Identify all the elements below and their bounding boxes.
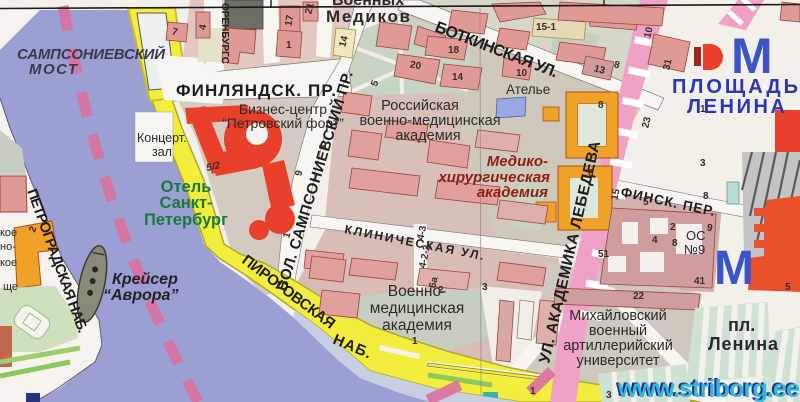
- svg-text:ОРЕНБУРГС: ОРЕНБУРГС: [219, 3, 230, 64]
- svg-text:18: 18: [448, 45, 460, 56]
- svg-text:Ленина: Ленина: [708, 334, 779, 354]
- svg-text:военно-медицинская: военно-медицинская: [359, 113, 500, 129]
- svg-text:академия: академия: [477, 184, 548, 201]
- svg-text:51: 51: [598, 249, 610, 260]
- svg-text:41: 41: [694, 276, 706, 287]
- svg-text:“Аврора”: “Аврора”: [103, 287, 178, 304]
- svg-text:академия: академия: [395, 128, 460, 144]
- svg-text:ФИНЛЯНДСК. ПР.: ФИНЛЯНДСК. ПР.: [176, 81, 336, 100]
- svg-text:4: 4: [652, 235, 658, 246]
- svg-text:1: 1: [412, 336, 418, 347]
- svg-text:2: 2: [670, 222, 676, 233]
- svg-text:1: 1: [700, 104, 706, 115]
- svg-text:15-1: 15-1: [536, 22, 556, 33]
- svg-text:22: 22: [633, 291, 645, 302]
- svg-text:М: М: [714, 242, 754, 295]
- svg-text:3: 3: [700, 158, 706, 169]
- svg-text:академия: академия: [382, 317, 452, 334]
- svg-text:артиллерийский: артиллерийский: [563, 338, 673, 354]
- svg-text:зал: зал: [152, 145, 172, 159]
- svg-text:1: 1: [286, 40, 292, 51]
- svg-text:МОСТ: МОСТ: [29, 61, 79, 78]
- svg-text:14: 14: [452, 72, 464, 83]
- svg-text:8: 8: [598, 100, 604, 111]
- svg-text:8: 8: [703, 191, 709, 202]
- svg-text:Концерт.: Концерт.: [137, 131, 187, 145]
- svg-text:кое: кое: [0, 257, 17, 269]
- svg-text:кое: кое: [0, 227, 17, 239]
- svg-text:№9: №9: [684, 242, 705, 257]
- svg-text:ПЛОЩАДЬ: ПЛОЩАДЬ: [672, 76, 798, 98]
- svg-text:5: 5: [643, 197, 649, 208]
- svg-text:5: 5: [785, 282, 791, 293]
- svg-text:медицинская: медицинская: [370, 300, 465, 317]
- svg-text:1: 1: [530, 386, 536, 397]
- svg-text:университет: университет: [576, 353, 659, 369]
- svg-text:Петербург: Петербург: [144, 211, 228, 229]
- svg-text:пл.: пл.: [728, 315, 755, 335]
- svg-text:8: 8: [672, 238, 678, 249]
- svg-text:Санкт-: Санкт-: [159, 194, 212, 212]
- svg-text:Михайловский: Михайловский: [569, 308, 666, 324]
- svg-text:но-: но-: [0, 241, 16, 253]
- svg-text:Крейсер: Крейсер: [112, 271, 178, 288]
- svg-text:3: 3: [606, 390, 612, 401]
- svg-text:ОС: ОС: [686, 228, 706, 243]
- svg-text:6: 6: [588, 168, 594, 179]
- svg-text:Медиков: Медиков: [326, 7, 410, 26]
- svg-text:Медико-: Медико-: [487, 153, 548, 170]
- svg-text:ще: ще: [3, 281, 18, 293]
- svg-text:www.striborg.ee: www.striborg.ee: [617, 375, 800, 402]
- svg-text:10: 10: [516, 68, 528, 79]
- svg-text:военный: военный: [589, 323, 647, 339]
- svg-text:Российская: Российская: [381, 98, 459, 114]
- svg-text:2: 2: [438, 285, 444, 296]
- svg-text:3: 3: [482, 282, 488, 293]
- svg-text:Ателье: Ателье: [506, 82, 550, 97]
